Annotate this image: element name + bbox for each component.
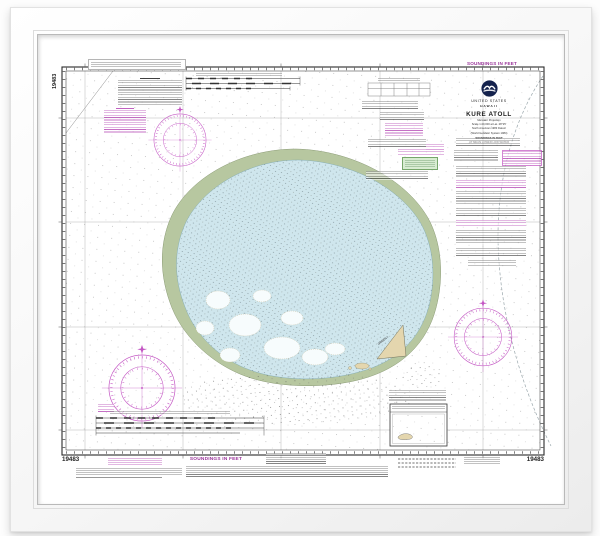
chart-note-block xyxy=(456,166,526,177)
note-heading xyxy=(140,78,160,79)
soundings-note-top: SOUNDINGS IN FEET xyxy=(462,61,522,66)
edition-note-text xyxy=(91,62,181,67)
bottom-paragraph xyxy=(186,466,388,477)
chart-note-block xyxy=(398,149,444,155)
chart-note-block xyxy=(454,150,498,161)
chart-note-block xyxy=(456,220,526,227)
highlighted-note-box xyxy=(402,157,438,170)
chart-note-block xyxy=(405,160,435,168)
chart-number-left-margin: 19483 xyxy=(52,63,58,89)
bottom-purple-note xyxy=(108,458,162,466)
framed-chart-print: SOUNDINGS IN FEET SOUNDINGS IN FEET 1948… xyxy=(0,0,600,536)
title-detail-line: (World Geodetic System 1984) xyxy=(447,132,531,135)
chart-note-block xyxy=(118,80,182,105)
inset-title-text xyxy=(392,406,445,410)
chart-number-bottom-right: 19483 xyxy=(512,457,544,464)
chart-title: KURE ATOLL xyxy=(447,111,531,118)
bottom-left-note xyxy=(76,468,182,476)
chart-note-block xyxy=(110,411,230,415)
chart-note-block xyxy=(468,260,516,267)
noaa-logo-icon xyxy=(481,80,498,97)
imprint-block xyxy=(266,453,326,464)
chart-note-block xyxy=(502,150,542,166)
chart-note-block xyxy=(456,208,526,217)
scalebar-caption xyxy=(464,457,500,464)
chart-note-block xyxy=(196,73,282,76)
chart-note-block xyxy=(362,101,418,109)
title-detail-line: Scale 1:20,000 at Lat. 28°25' xyxy=(447,123,531,126)
chart-note-block xyxy=(389,390,446,401)
title-detail-line: Mercator Projection xyxy=(447,119,531,122)
chart-note-block xyxy=(380,112,424,120)
chart-note-block xyxy=(456,248,526,257)
chart-note-block xyxy=(378,78,420,82)
chart-note-block xyxy=(104,110,146,133)
soundings-note-bottom: SOUNDINGS IN FEET xyxy=(188,457,244,462)
edition-note-box xyxy=(88,59,186,70)
chart-note-block xyxy=(385,123,423,136)
chart-note-block xyxy=(456,191,526,204)
chart-note-block xyxy=(368,139,426,147)
chart-note-block xyxy=(366,171,428,180)
title-region: HAWAII xyxy=(447,104,531,108)
title-country: UNITED STATES xyxy=(447,99,531,103)
title-detail-line: North American 1983 Datum xyxy=(447,127,531,130)
title-block: UNITED STATES HAWAII KURE ATOLL Mercator… xyxy=(447,80,531,144)
chart-note-block xyxy=(456,138,520,147)
chart-number-bottom-left: 19483 xyxy=(62,457,79,464)
note-heading xyxy=(116,108,134,109)
chart-note-block xyxy=(456,180,526,188)
chart-note-block xyxy=(456,230,526,244)
